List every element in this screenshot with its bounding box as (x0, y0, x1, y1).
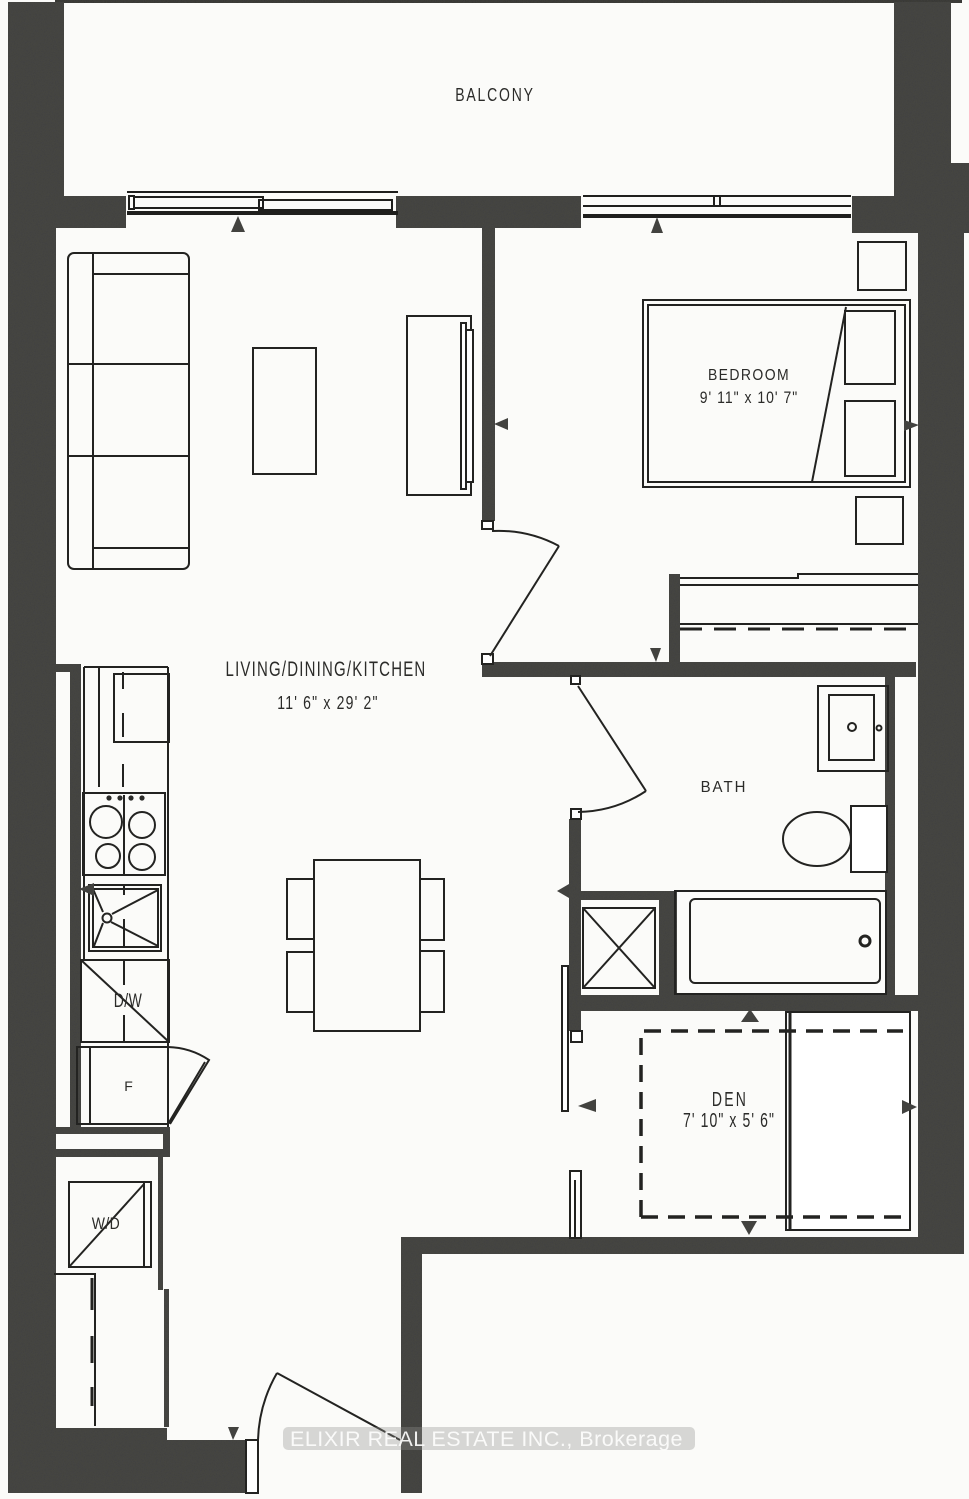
svg-text:7' 10" x 5' 6": 7' 10" x 5' 6" (683, 1108, 775, 1131)
svg-text:F: F (124, 1078, 134, 1094)
svg-text:BALCONY: BALCONY (455, 84, 534, 106)
svg-text:LIVING/DINING/KITCHEN: LIVING/DINING/KITCHEN (226, 656, 427, 680)
svg-text:ELIXIR REAL ESTATE INC., Broke: ELIXIR REAL ESTATE INC., Brokerage (290, 1427, 683, 1451)
svg-text:11' 6" x 29' 2": 11' 6" x 29' 2" (277, 693, 378, 713)
svg-text:9' 11" x 10' 7": 9' 11" x 10' 7" (700, 389, 798, 407)
svg-text:D/W: D/W (114, 990, 142, 1012)
svg-text:W/D: W/D (92, 1215, 120, 1233)
svg-text:BATH: BATH (701, 779, 748, 796)
svg-text:DEN: DEN (712, 1087, 748, 1110)
svg-text:BEDROOM: BEDROOM (708, 367, 790, 384)
